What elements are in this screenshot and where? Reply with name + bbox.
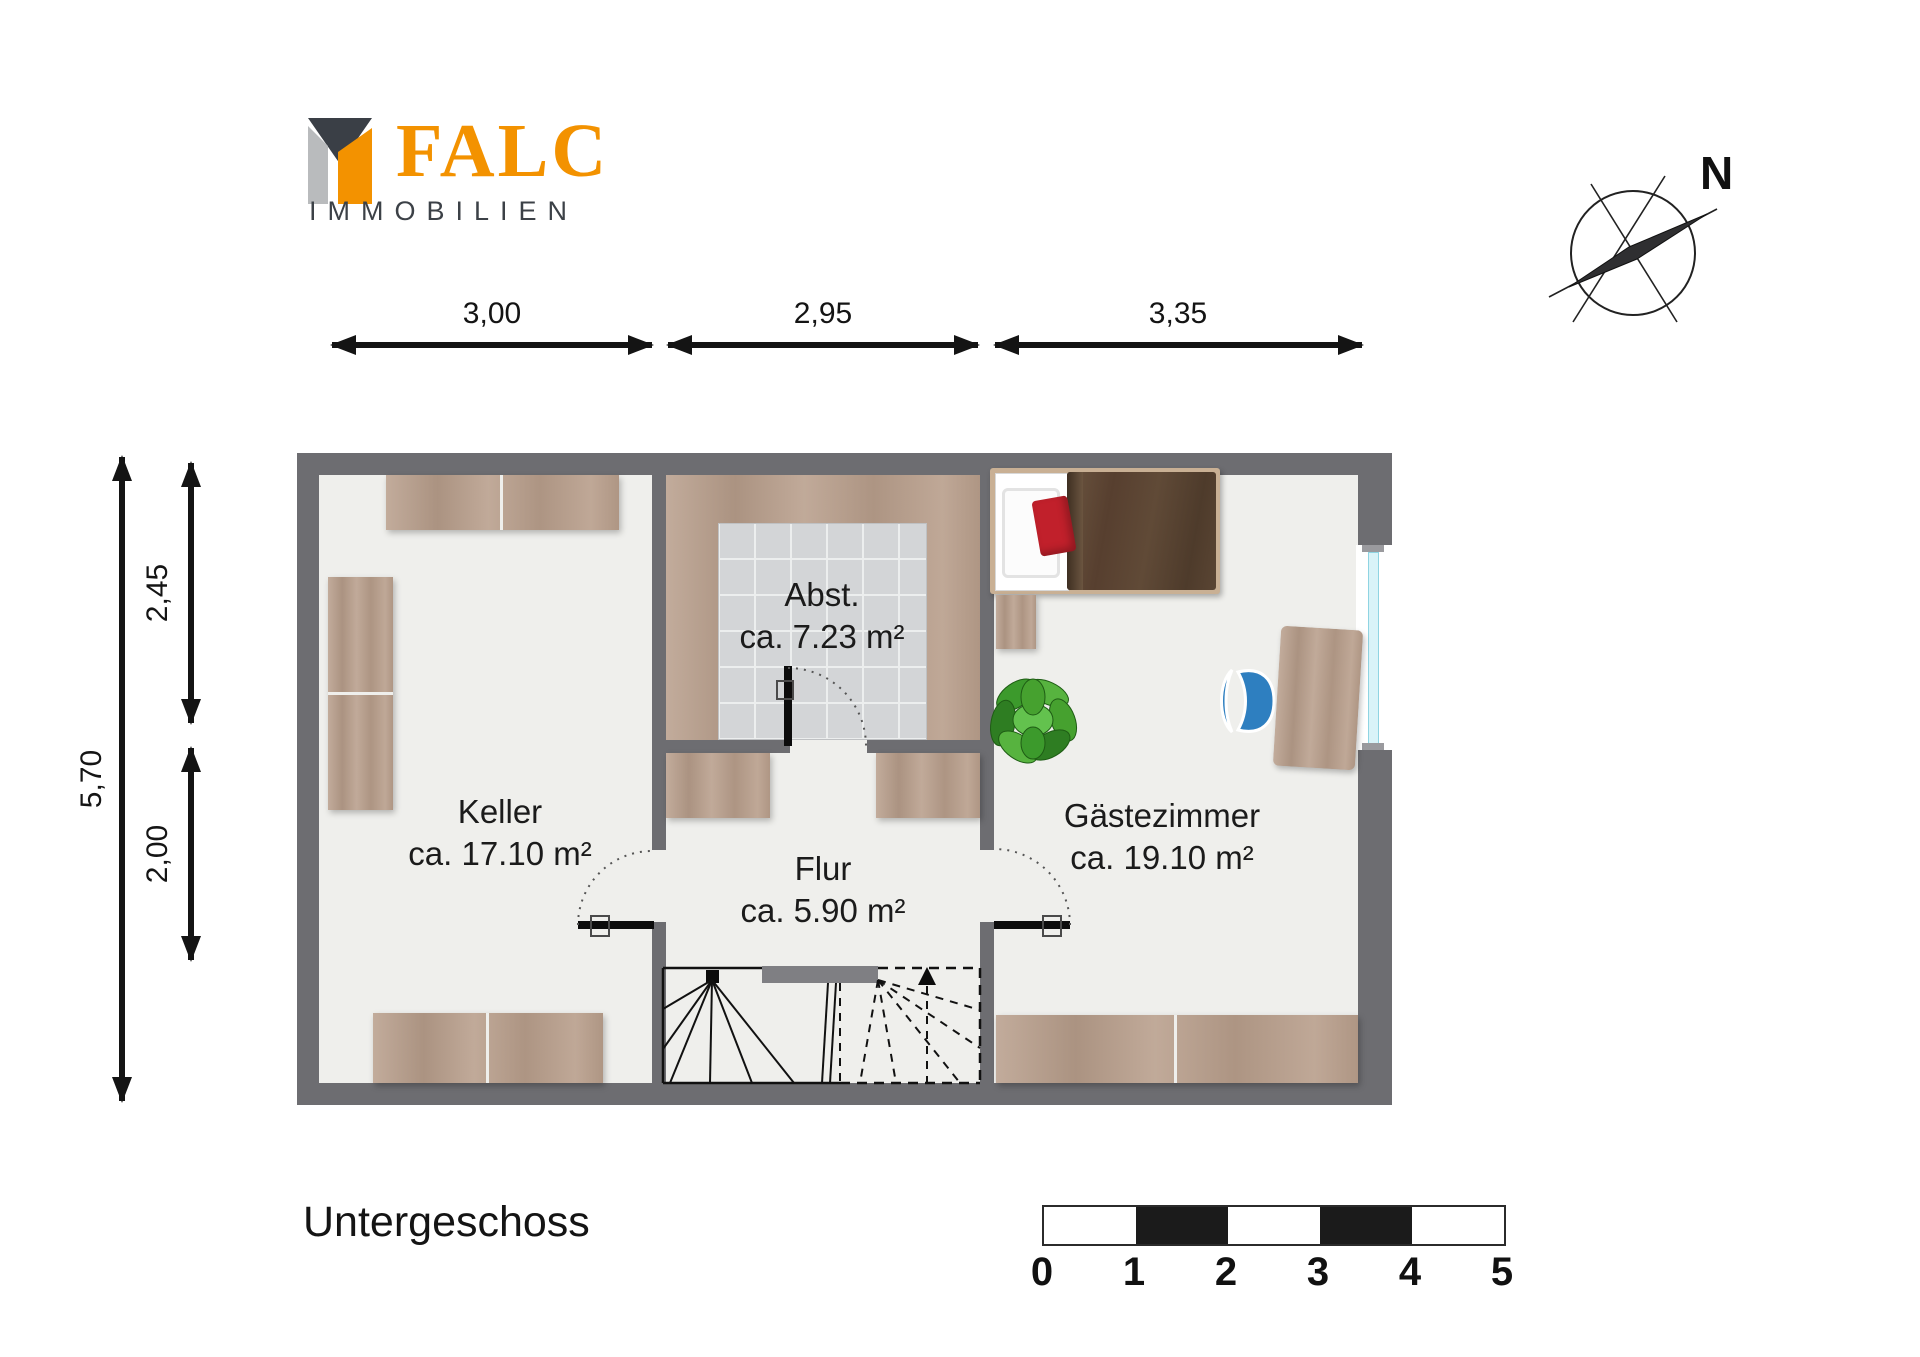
- flur-shelf-right: [876, 753, 980, 818]
- dim-label-200: 2,00: [141, 825, 175, 883]
- scale-seg-white-1: [1044, 1207, 1136, 1244]
- wall-keller-divider-upper: [652, 475, 666, 850]
- keller-label: Keller ca. 17.10 m²: [408, 791, 591, 875]
- scale-num-5: 5: [1491, 1250, 1513, 1295]
- logo-subtitle: IMMOBILIEN: [309, 196, 578, 227]
- flur-name: Flur: [740, 848, 905, 890]
- window-sill-top: [1362, 545, 1384, 552]
- desk: [1273, 626, 1363, 771]
- scale-num-1: 1: [1123, 1250, 1145, 1295]
- dim-label-top-2: 2,95: [794, 297, 852, 331]
- wall-abst-bottom-right: [867, 740, 980, 753]
- wall-abst-bottom-left: [666, 740, 790, 753]
- stairs: [660, 964, 984, 1086]
- keller-name: Keller: [408, 791, 591, 833]
- scale-seg-black-1: [1136, 1207, 1228, 1244]
- window-sill-bottom: [1362, 743, 1384, 750]
- bed: [990, 468, 1220, 594]
- abst-name: Abst.: [739, 574, 904, 616]
- scale-num-4: 4: [1399, 1250, 1421, 1295]
- scale-num-2: 2: [1215, 1250, 1237, 1295]
- wall-bottom: [297, 1083, 1392, 1105]
- dim-arrow-top-3: [995, 342, 1362, 348]
- keller-shelf-top: [386, 475, 619, 530]
- dim-arrow-top-1: [332, 342, 652, 348]
- dim-label-570: 5,70: [75, 750, 109, 808]
- dim-arrow-left-570: [119, 457, 125, 1101]
- flur-shelf-left: [666, 753, 770, 818]
- gaeste-area: ca. 19.10 m²: [1064, 837, 1260, 879]
- abst-label: Abst. ca. 7.23 m²: [739, 574, 904, 658]
- abst-area: ca. 7.23 m²: [739, 616, 904, 658]
- scale-seg-white-2: [1228, 1207, 1320, 1244]
- scale-num-3: 3: [1307, 1250, 1329, 1295]
- gaeste-shelf-small: [996, 595, 1036, 649]
- keller-area: ca. 17.10 m²: [408, 833, 591, 875]
- scale-seg-black-2: [1320, 1207, 1412, 1244]
- wall-left: [297, 453, 319, 1105]
- dim-arrow-left-245: [188, 463, 194, 723]
- desk-chair: [1208, 664, 1282, 738]
- compass-rose: [1545, 170, 1740, 340]
- abst-door-swing-arc: [786, 664, 878, 756]
- gaeste-shelf-bottom: [996, 1015, 1358, 1083]
- scale-bar: [1042, 1205, 1506, 1246]
- dim-arrow-left-200: [188, 748, 194, 960]
- wall-right-lower: [1358, 750, 1392, 1105]
- floor-title: Untergeschoss: [303, 1198, 590, 1247]
- scale-seg-white-3: [1412, 1207, 1504, 1244]
- gaeste-label: Gästezimmer ca. 19.10 m²: [1064, 795, 1260, 879]
- window-glass: [1368, 552, 1379, 745]
- flur-area: ca. 5.90 m²: [740, 890, 905, 932]
- keller-shelf-bottom: [373, 1013, 603, 1083]
- scale-num-0: 0: [1031, 1250, 1053, 1295]
- logo-title: FALC: [396, 108, 609, 195]
- wall-top: [297, 453, 1392, 475]
- plant: [978, 665, 1088, 775]
- keller-cabinet-left: [328, 577, 393, 810]
- wall-right-upper: [1358, 453, 1392, 545]
- dim-label-245: 2,45: [141, 564, 175, 622]
- dim-arrow-top-2: [668, 342, 978, 348]
- flur-label: Flur ca. 5.90 m²: [740, 848, 905, 932]
- dim-label-top-3: 3,35: [1149, 297, 1207, 331]
- gaeste-name: Gästezimmer: [1064, 795, 1260, 837]
- bed-blanket: [1067, 472, 1216, 590]
- dim-label-top-1: 3,00: [463, 297, 521, 331]
- floorplan-page: FALC IMMOBILIEN N 3,00 2,95 3,35 5,70 2,…: [0, 0, 1920, 1357]
